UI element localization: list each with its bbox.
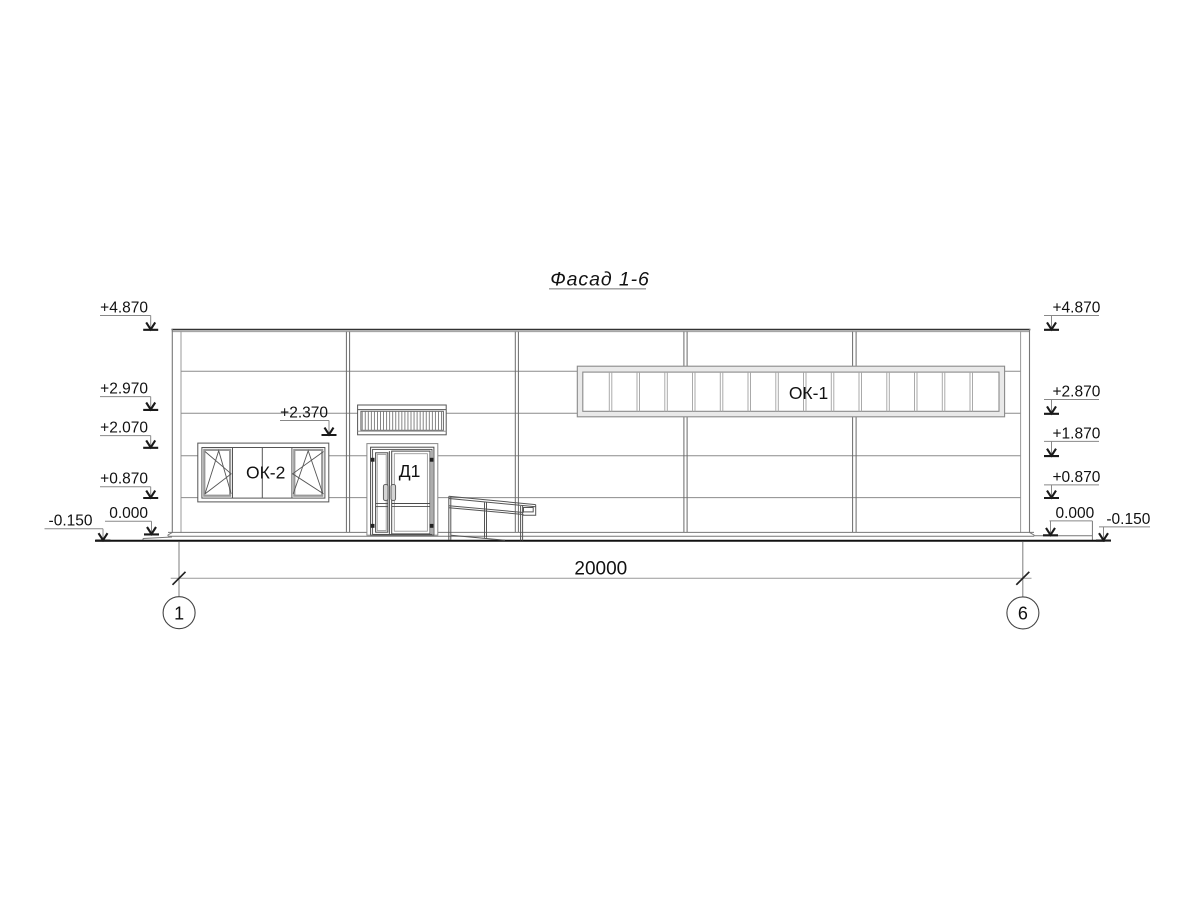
- svg-text:Д1: Д1: [399, 461, 421, 481]
- svg-text:ОК-1: ОК-1: [789, 383, 828, 403]
- svg-text:+4.870: +4.870: [1053, 300, 1101, 317]
- svg-text:+2.970: +2.970: [100, 381, 148, 398]
- svg-text:+0.870: +0.870: [1053, 469, 1101, 486]
- svg-text:+1.870: +1.870: [1053, 426, 1101, 443]
- svg-text:+2.870: +2.870: [1053, 384, 1101, 401]
- svg-text:-0.150: -0.150: [1106, 511, 1150, 528]
- svg-text:Фасад 1-6: Фасад 1-6: [550, 269, 649, 291]
- svg-text:0.000: 0.000: [1056, 505, 1095, 522]
- svg-text:6: 6: [1018, 604, 1028, 624]
- svg-text:+4.870: +4.870: [100, 300, 148, 317]
- svg-text:+0.870: +0.870: [100, 471, 148, 488]
- svg-text:ОК-2: ОК-2: [246, 462, 285, 482]
- svg-text:+2.370: +2.370: [280, 405, 328, 422]
- svg-text:0.000: 0.000: [109, 505, 148, 522]
- svg-text:1: 1: [174, 603, 184, 623]
- svg-text:+2.070: +2.070: [100, 420, 148, 437]
- svg-text:-0.150: -0.150: [49, 513, 93, 530]
- svg-text:20000: 20000: [574, 559, 627, 580]
